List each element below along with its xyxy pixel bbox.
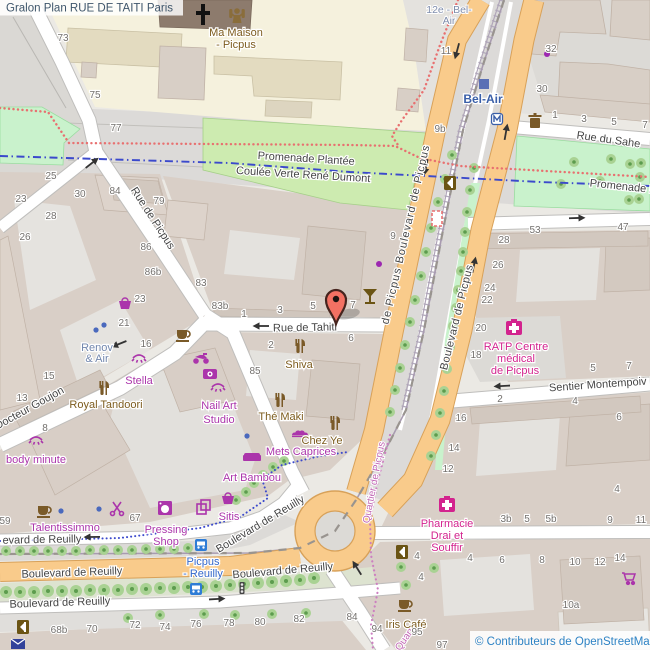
svg-text:1: 1 <box>552 110 558 121</box>
svg-text:Talentissimmo: Talentissimmo <box>30 522 100 534</box>
svg-text:20: 20 <box>475 323 487 334</box>
svg-text:18: 18 <box>470 350 482 361</box>
svg-text:4: 4 <box>614 484 620 495</box>
svg-text:5: 5 <box>524 514 530 525</box>
svg-text:83b: 83b <box>212 301 229 312</box>
svg-text:79: 79 <box>153 196 165 207</box>
svg-text:Stella: Stella <box>125 375 153 387</box>
svg-text:9b: 9b <box>434 124 446 135</box>
svg-text:47: 47 <box>617 222 629 233</box>
svg-text:24: 24 <box>484 283 496 294</box>
svg-text:30: 30 <box>536 84 548 95</box>
svg-text:12: 12 <box>442 464 454 475</box>
svg-text:76: 76 <box>190 619 202 630</box>
svg-text:8: 8 <box>42 423 48 434</box>
svg-text:Pressing: Pressing <box>145 524 188 536</box>
svg-text:78: 78 <box>223 618 235 629</box>
svg-text:13: 13 <box>16 393 28 404</box>
svg-text:Pharmacie: Pharmacie <box>421 518 474 530</box>
svg-text:Ma Maison: Ma Maison <box>209 27 263 39</box>
svg-text:Sitis: Sitis <box>219 511 240 523</box>
svg-text:2: 2 <box>268 340 274 351</box>
svg-text:53: 53 <box>529 225 541 236</box>
svg-text:médical: médical <box>497 353 535 365</box>
svg-text:6: 6 <box>348 333 354 344</box>
svg-text:15: 15 <box>43 371 55 382</box>
svg-text:3: 3 <box>277 305 283 316</box>
svg-text:6: 6 <box>499 555 505 566</box>
svg-text:23: 23 <box>134 294 146 305</box>
svg-text:7: 7 <box>626 361 632 372</box>
svg-text:25: 25 <box>45 171 57 182</box>
svg-text:75: 75 <box>89 90 101 101</box>
svg-text:86: 86 <box>140 242 152 253</box>
svg-text:11: 11 <box>636 515 647 526</box>
svg-text:evard de Reuilly: evard de Reuilly <box>2 533 82 546</box>
svg-text:4: 4 <box>572 396 578 407</box>
svg-text:9: 9 <box>390 231 396 242</box>
svg-text:74: 74 <box>159 622 171 633</box>
svg-text:Drai et: Drai et <box>431 530 463 542</box>
svg-text:© Contributeurs de OpenStreetM: © Contributeurs de OpenStreetMap <box>475 636 650 648</box>
svg-text:16: 16 <box>455 413 467 424</box>
svg-text:83: 83 <box>195 278 207 289</box>
svg-text:72: 72 <box>129 620 141 631</box>
svg-text:5: 5 <box>310 301 316 312</box>
svg-text:1: 1 <box>241 309 247 320</box>
svg-text:Picpus: Picpus <box>186 556 220 568</box>
svg-text:Nail Art: Nail Art <box>201 400 236 412</box>
svg-text:3: 3 <box>581 114 587 125</box>
svg-text:22: 22 <box>481 295 493 306</box>
svg-text:95: 95 <box>411 627 423 638</box>
svg-text:14: 14 <box>448 443 460 454</box>
svg-text:5b: 5b <box>545 514 557 525</box>
svg-text:body minute: body minute <box>6 454 66 466</box>
svg-text:80: 80 <box>254 617 266 628</box>
svg-text:Shop: Shop <box>153 536 179 548</box>
svg-text:11: 11 <box>441 46 452 57</box>
svg-text:Art Bambou: Art Bambou <box>223 472 281 484</box>
svg-text:30: 30 <box>74 189 86 200</box>
svg-text:70: 70 <box>86 624 98 635</box>
svg-text:84: 84 <box>346 612 358 623</box>
svg-text:10a: 10a <box>563 600 580 611</box>
svg-text:68b: 68b <box>51 625 68 636</box>
svg-text:23: 23 <box>15 194 27 205</box>
svg-text:Gralon Plan RUE DE TAITI Paris: Gralon Plan RUE DE TAITI Paris <box>6 3 173 15</box>
svg-text:Air: Air <box>443 15 456 27</box>
svg-text:59: 59 <box>0 516 11 527</box>
svg-text:- Reuilly: - Reuilly <box>183 568 223 580</box>
svg-text:10: 10 <box>569 557 581 568</box>
svg-text:Bel-Air: Bel-Air <box>463 92 503 106</box>
svg-text:28: 28 <box>498 235 510 246</box>
svg-text:de Picpus: de Picpus <box>491 365 540 377</box>
svg-text:97: 97 <box>436 640 448 650</box>
svg-text:32: 32 <box>545 44 557 55</box>
svg-text:2: 2 <box>497 394 503 405</box>
svg-text:7: 7 <box>642 120 648 131</box>
svg-text:21: 21 <box>118 318 130 329</box>
svg-text:26: 26 <box>19 232 31 243</box>
svg-text:67: 67 <box>129 513 141 524</box>
svg-text:73: 73 <box>57 33 69 44</box>
svg-text:12: 12 <box>594 557 606 568</box>
svg-text:16: 16 <box>140 339 152 350</box>
svg-text:Royal Tandoori: Royal Tandoori <box>69 399 142 411</box>
svg-text:86b: 86b <box>145 267 162 278</box>
svg-text:6: 6 <box>616 412 622 423</box>
svg-text:84: 84 <box>109 186 121 197</box>
svg-text:- Picpus: - Picpus <box>216 39 256 51</box>
svg-text:Shiva: Shiva <box>285 359 313 371</box>
svg-text:Thé Maki: Thé Maki <box>258 411 303 423</box>
svg-text:26: 26 <box>492 260 504 271</box>
svg-text:94: 94 <box>371 624 383 635</box>
svg-text:77: 77 <box>110 123 122 134</box>
svg-text:& Air: & Air <box>85 353 109 365</box>
svg-text:4: 4 <box>418 572 424 583</box>
svg-text:9: 9 <box>607 515 613 526</box>
svg-text:4: 4 <box>467 553 473 564</box>
svg-text:5: 5 <box>590 363 596 374</box>
svg-text:82: 82 <box>293 614 305 625</box>
svg-text:8: 8 <box>539 555 545 566</box>
svg-text:RATP Centre: RATP Centre <box>484 341 548 353</box>
svg-text:28: 28 <box>45 211 57 222</box>
svg-text:Rue de Tahiti: Rue de Tahiti <box>273 321 337 334</box>
svg-text:14: 14 <box>614 553 626 564</box>
svg-text:Mets Caprices: Mets Caprices <box>266 446 337 458</box>
svg-text:5: 5 <box>611 117 617 128</box>
svg-text:Souffir: Souffir <box>431 542 463 554</box>
svg-text:4: 4 <box>414 551 420 562</box>
svg-text:Studio: Studio <box>203 414 234 426</box>
svg-text:3b: 3b <box>500 514 512 525</box>
svg-text:85: 85 <box>249 366 261 377</box>
